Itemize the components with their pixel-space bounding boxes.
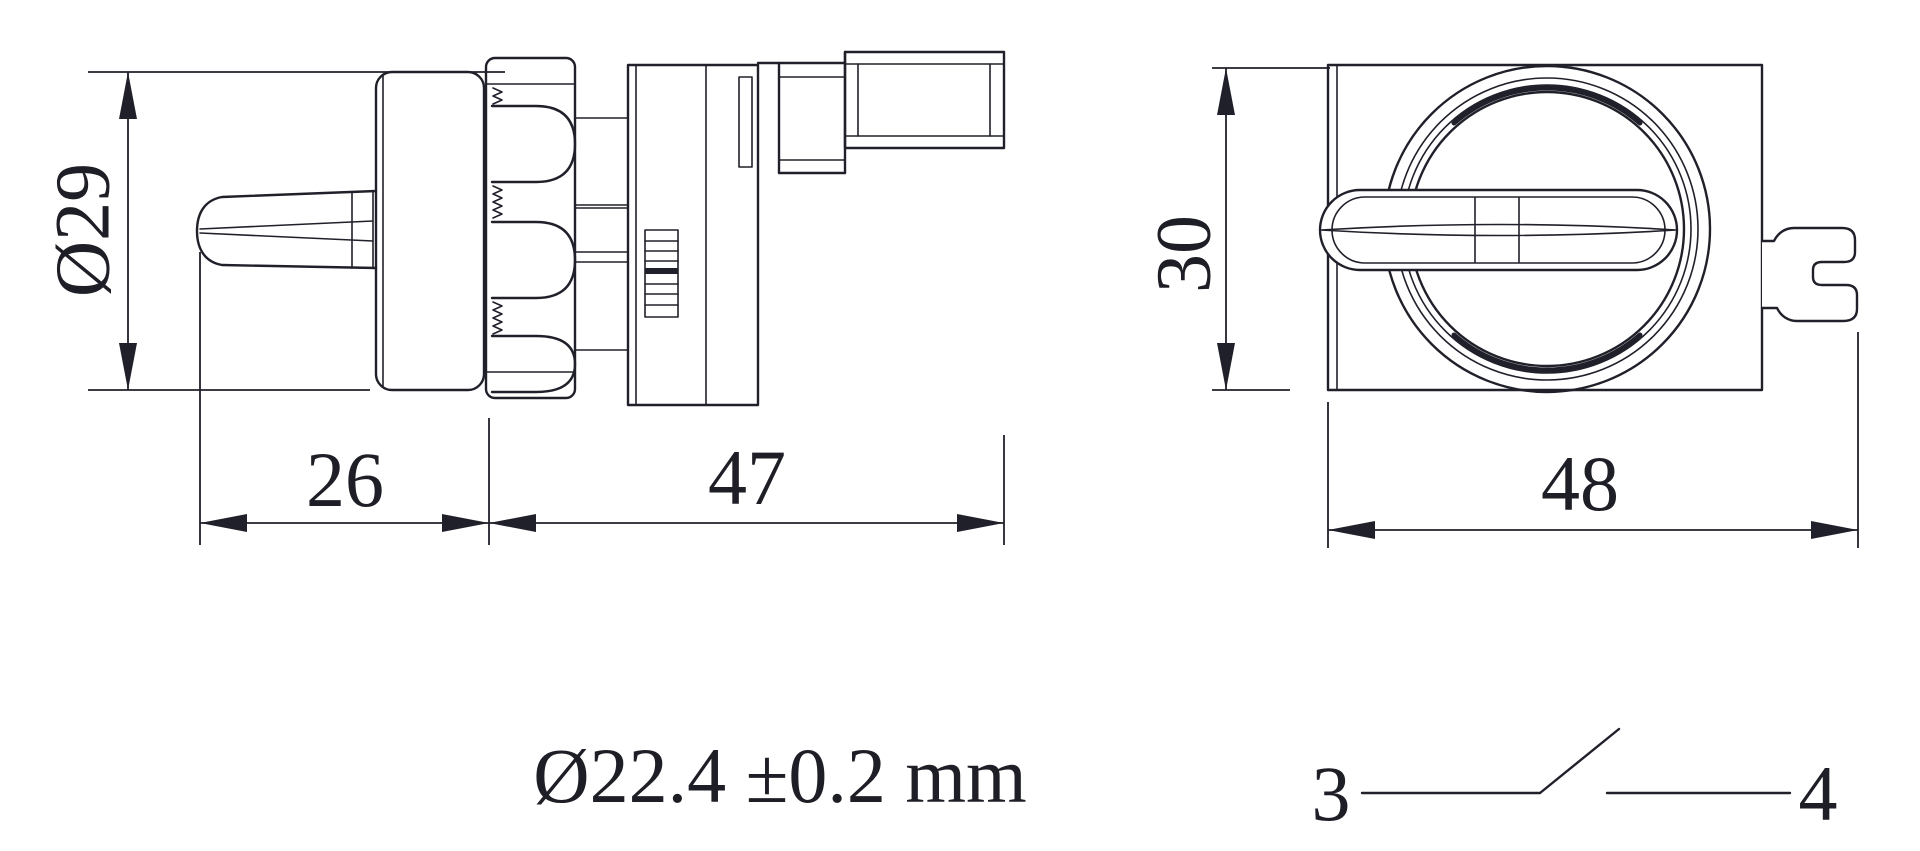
dim-label-47: 47 bbox=[708, 434, 786, 521]
contact-terminal-4: 4 bbox=[1799, 750, 1838, 837]
bezel-side bbox=[376, 72, 484, 390]
terminal-block-side bbox=[739, 52, 1004, 173]
toggle-knob-front bbox=[1320, 190, 1677, 270]
toggle-lever-side bbox=[197, 191, 376, 268]
mounting-hole-note: Ø22.4 ±0.2 mm bbox=[533, 732, 1026, 819]
dim-height-30: 30 bbox=[1140, 68, 1331, 390]
knurled-collar bbox=[486, 58, 575, 398]
fixing-clip-tab bbox=[1762, 228, 1857, 321]
mounting-hole-note-text: Ø22.4 ±0.2 mm bbox=[533, 732, 1026, 819]
contact-symbol: 3 4 bbox=[1312, 729, 1838, 837]
dim-diameter-29: Ø29 bbox=[39, 72, 506, 390]
front-view-drawing: 30 48 bbox=[1140, 65, 1859, 548]
side-view-drawing: Ø29 26 47 bbox=[39, 52, 1005, 545]
contact-terminal-3: 3 bbox=[1312, 750, 1351, 837]
technical-drawing-canvas: Ø29 26 47 bbox=[0, 0, 1920, 851]
latch-neck bbox=[575, 118, 628, 350]
dim-label-30: 30 bbox=[1140, 215, 1227, 293]
dim-label-26: 26 bbox=[306, 436, 384, 523]
dim-depth-26-47: 26 47 bbox=[200, 252, 1004, 545]
contact-blade bbox=[1540, 729, 1619, 793]
dim-label-diameter-29: Ø29 bbox=[39, 163, 126, 297]
dim-label-48: 48 bbox=[1541, 440, 1619, 527]
ribbed-slider-detail bbox=[645, 230, 678, 317]
